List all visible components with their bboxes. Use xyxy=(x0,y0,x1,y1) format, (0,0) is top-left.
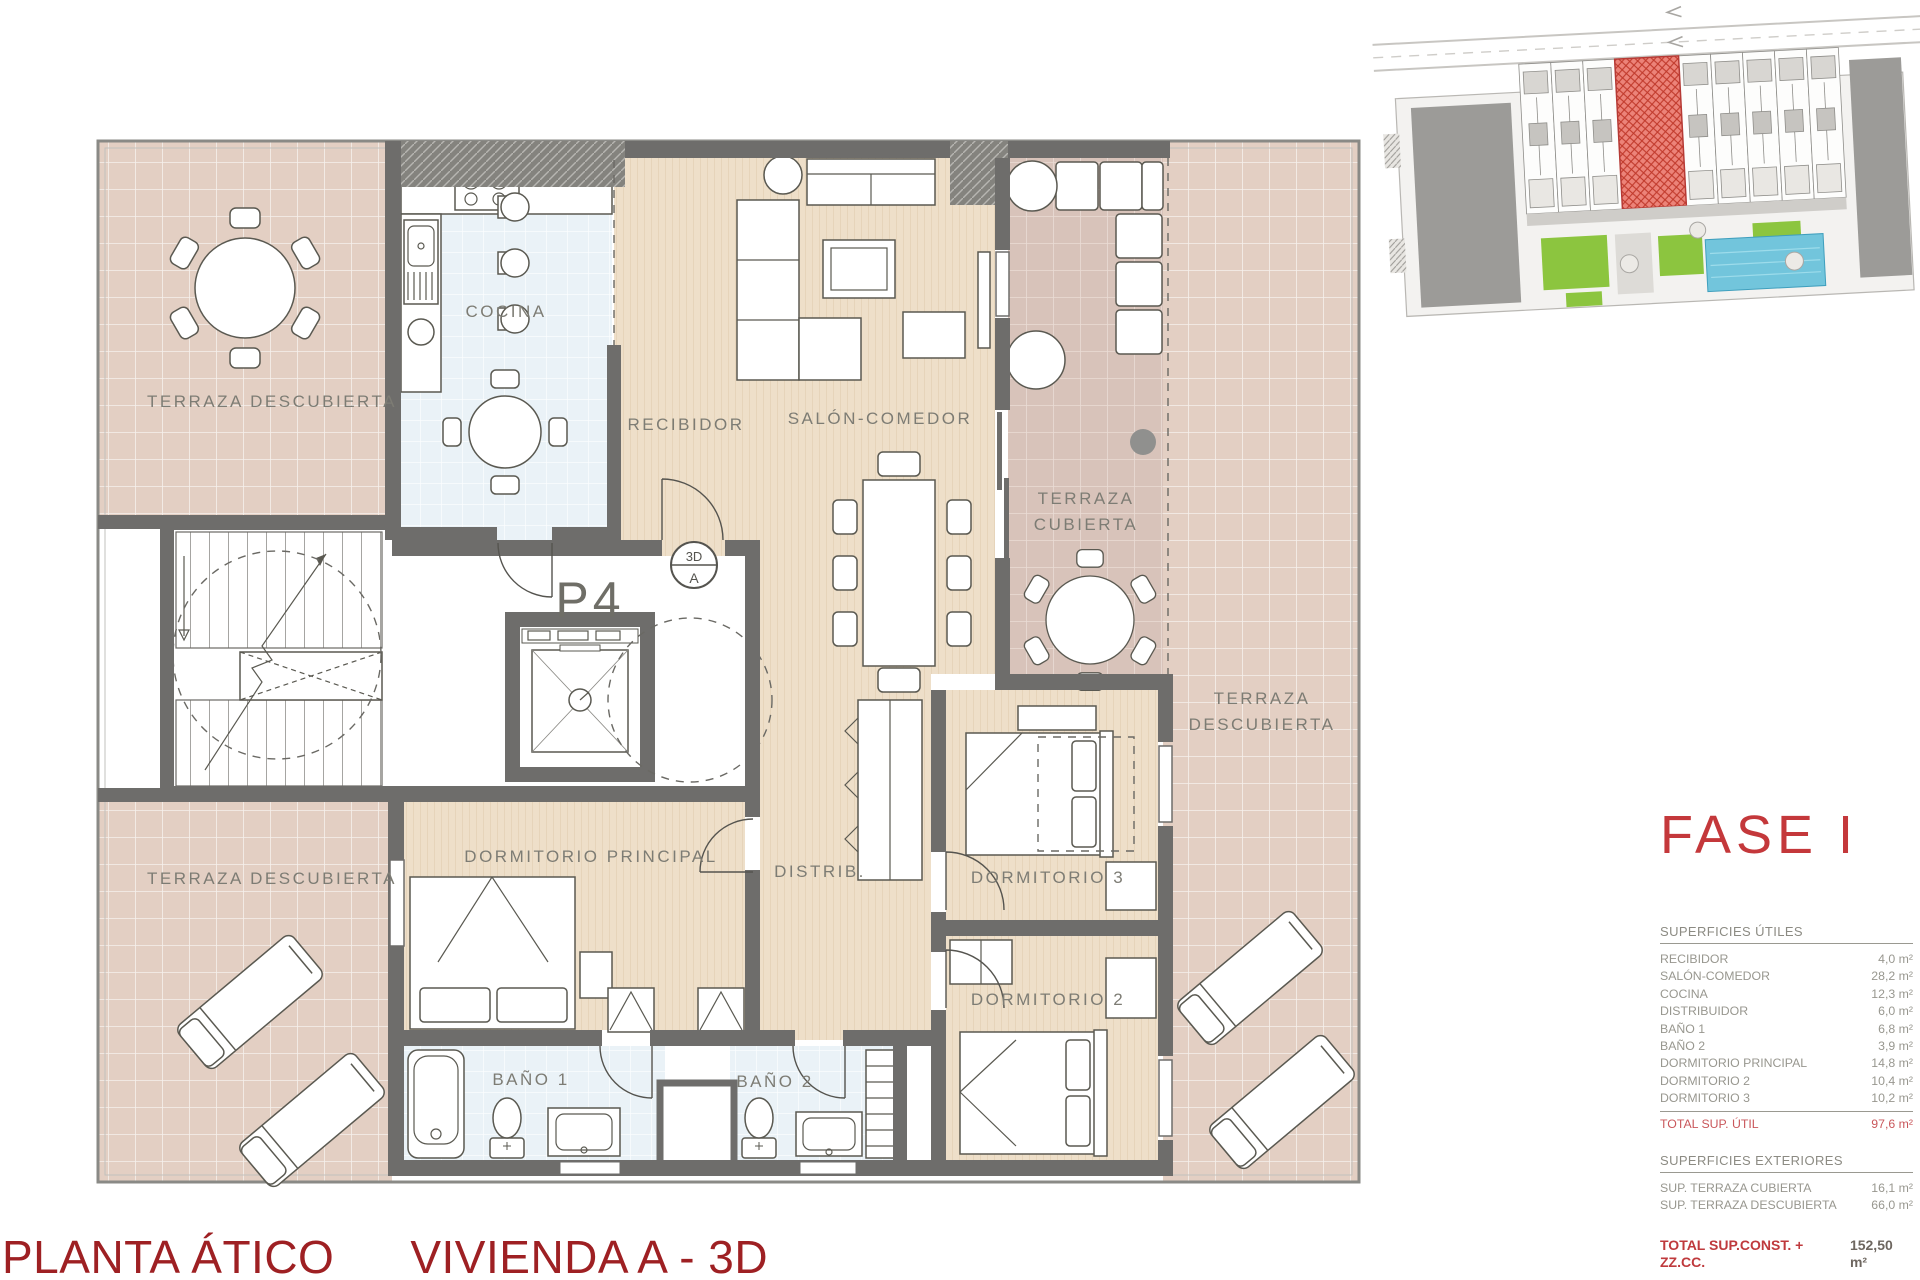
room-label-distribuidor: DISTRIB. xyxy=(774,859,866,885)
site-plan xyxy=(1371,0,1920,317)
site-garden xyxy=(1566,291,1603,307)
table-row: DISTRIBUIDOR6,0 m² xyxy=(1660,1003,1913,1020)
bathtub-icon xyxy=(408,1050,464,1158)
table-row: DORMITORIO 310,2 m² xyxy=(1660,1090,1913,1107)
window xyxy=(1159,1060,1172,1136)
shaft xyxy=(660,1083,734,1165)
sink-icon xyxy=(404,220,438,304)
tv-bench xyxy=(978,252,990,348)
table-row: SUP. TERRAZA CUBIERTA16,1 m² xyxy=(1660,1180,1913,1197)
room-label-terraza-cubierta: TERRAZA CUBIERTA xyxy=(1021,486,1151,538)
table-row: COCINA12,3 m² xyxy=(1660,986,1913,1003)
phase-title: FASE I xyxy=(1660,804,1858,866)
road-arrow-icon xyxy=(1667,7,1682,18)
exterior-notch xyxy=(98,530,160,786)
room-label-bano-1: BAÑO 1 xyxy=(492,1067,569,1093)
site-building-left xyxy=(1411,103,1521,308)
page: 3D A xyxy=(0,0,1920,1280)
total-construida-row: TOTAL SUP.CONST. + ZZ.CC.152,50 m² xyxy=(1660,1237,1913,1272)
room-label-cocina: COCINA xyxy=(465,299,546,325)
window xyxy=(1159,746,1172,822)
table-row: BAÑO 16,8 m² xyxy=(1660,1021,1913,1038)
room-label-salon-comedor: SALÓN-COMEDOR xyxy=(788,406,973,432)
planter-icon xyxy=(1130,429,1156,455)
view-marker-3d-a: 3D A xyxy=(671,542,717,588)
table-row: RECIBIDOR4,0 m² xyxy=(1660,951,1913,968)
room-label-dormitorio-principal: DORMITORIO PRINCIPAL xyxy=(464,844,717,870)
tree-icon xyxy=(1785,252,1804,271)
table-row: DORMITORIO PRINCIPAL14,8 m² xyxy=(1660,1055,1913,1072)
tree-icon xyxy=(1689,222,1706,239)
room-label-dormitorio-3: DORMITORIO 3 xyxy=(971,865,1125,891)
table-row: SUP. TERRAZA DESCUBIERTA66,0 m² xyxy=(1660,1197,1913,1214)
sheet-title-unit: VIVIENDA A - 3D xyxy=(410,1231,768,1280)
site-highlighted-unit xyxy=(1615,56,1687,209)
sliding-door xyxy=(1004,478,1009,560)
tree-icon xyxy=(1620,254,1639,273)
room-label-terraza-descubierta-right: TERRAZA DESCUBIERTA xyxy=(1182,686,1342,738)
window xyxy=(800,1162,856,1174)
window xyxy=(560,1162,620,1174)
total-util-row: TOTAL SUP. ÚTIL97,6 m² xyxy=(1660,1111,1913,1133)
table-row: BAÑO 23,9 m² xyxy=(1660,1038,1913,1055)
table-row: DORMITORIO 210,4 m² xyxy=(1660,1073,1913,1090)
elevator xyxy=(505,612,655,782)
table-row: SALÓN-COMEDOR28,2 m² xyxy=(1660,968,1913,985)
sliding-door xyxy=(997,412,1002,490)
marker-bottom-text: A xyxy=(689,570,699,586)
room-label-terraza-descubierta-bl: TERRAZA DESCUBIERTA xyxy=(147,866,397,892)
sheet-title: PLANTA ÁTICOVIVIENDA A - 3D xyxy=(2,1230,768,1280)
sheet-title-level: PLANTA ÁTICO xyxy=(2,1231,334,1280)
areas-table: SUPERFICIES ÚTILES RECIBIDOR4,0 m² SALÓN… xyxy=(1660,924,1913,1272)
room-label-recibidor: RECIBIDOR xyxy=(628,412,745,438)
marker-top-text: 3D xyxy=(686,549,703,564)
window xyxy=(996,252,1009,316)
exteriores-header: SUPERFICIES EXTERIORES xyxy=(1660,1153,1913,1173)
room-label-bano-2: BAÑO 2 xyxy=(736,1069,813,1095)
staircase xyxy=(173,532,382,786)
room-label-dormitorio-2: DORMITORIO 2 xyxy=(971,987,1125,1013)
site-garden xyxy=(1541,235,1610,290)
utiles-header: SUPERFICIES ÚTILES xyxy=(1660,924,1913,944)
unit-number-label: P4 xyxy=(555,571,624,629)
site-garden xyxy=(1658,234,1704,276)
floor-plan: 3D A xyxy=(98,141,1359,1190)
room-label-terraza-descubierta-tl: TERRAZA DESCUBIERTA xyxy=(147,389,397,415)
plan-canvas: 3D A xyxy=(0,0,1920,1280)
